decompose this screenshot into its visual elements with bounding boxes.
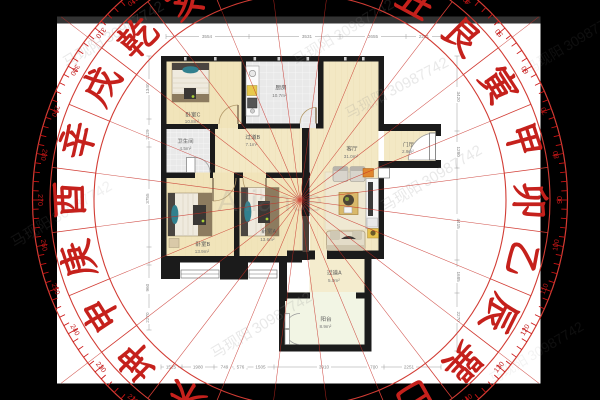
svg-text:13.9m²: 13.9m² [195, 249, 210, 254]
svg-text:C: C [197, 113, 201, 119]
svg-text:749: 749 [221, 365, 229, 370]
svg-text:270: 270 [36, 194, 43, 206]
svg-text:13.6m²: 13.6m² [260, 237, 275, 242]
svg-text:31.0m²: 31.0m² [344, 154, 359, 159]
svg-text:2129: 2129 [145, 129, 150, 140]
svg-text:10.7m²: 10.7m² [272, 93, 287, 98]
svg-text:B: B [207, 242, 211, 248]
svg-text:90: 90 [557, 196, 564, 204]
svg-text:1980: 1980 [193, 365, 204, 370]
svg-text:3420: 3420 [456, 91, 461, 102]
svg-text:576: 576 [237, 365, 245, 370]
svg-text:1525: 1525 [166, 365, 177, 370]
svg-text:B: B [257, 135, 261, 141]
svg-text:8.9m²: 8.9m² [320, 324, 332, 329]
svg-text:2270: 2270 [145, 312, 150, 323]
svg-text:3910: 3910 [319, 365, 330, 370]
svg-text:Alliance: Alliance [217, 185, 322, 218]
svg-text:3554: 3554 [202, 34, 213, 39]
svg-text:960: 960 [145, 283, 150, 291]
svg-text:1505: 1505 [255, 365, 266, 370]
svg-text:A: A [273, 229, 277, 235]
svg-text:1685: 1685 [456, 271, 461, 282]
svg-text:3755: 3755 [145, 193, 150, 204]
svg-text:A: A [338, 271, 342, 277]
svg-text:2251: 2251 [404, 365, 415, 370]
svg-text:700: 700 [370, 365, 378, 370]
svg-text:2655: 2655 [368, 34, 379, 39]
svg-text:10.8m²: 10.8m² [185, 119, 200, 124]
svg-text:4.5m²: 4.5m² [180, 146, 192, 151]
svg-text:80: 80 [553, 150, 561, 159]
svg-text:3531: 3531 [302, 34, 313, 39]
svg-text:4415: 4415 [456, 218, 461, 229]
